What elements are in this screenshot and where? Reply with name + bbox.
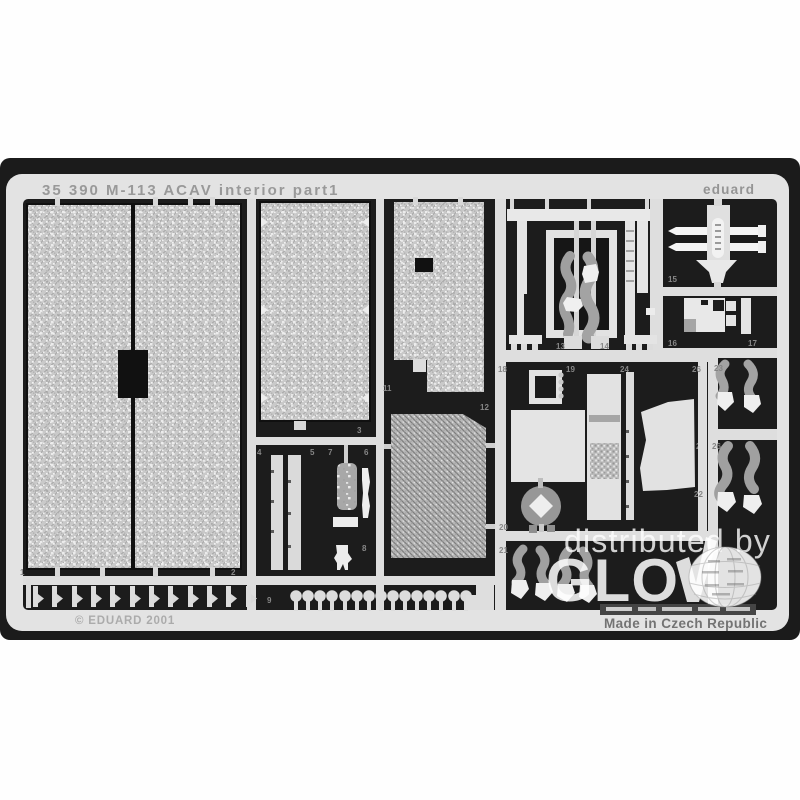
svg-text:18: 18 — [498, 365, 507, 374]
svg-text:1: 1 — [20, 568, 25, 577]
svg-text:3: 3 — [357, 426, 362, 435]
svg-text:19: 19 — [566, 365, 575, 374]
svg-text:15: 15 — [668, 275, 677, 284]
svg-text:12: 12 — [480, 403, 489, 412]
svg-text:21: 21 — [499, 546, 508, 555]
svg-text:© EDUARD 2001: © EDUARD 2001 — [75, 615, 175, 627]
svg-text:eduard: eduard — [703, 182, 755, 197]
svg-text:35 390 M-113 ACAV interior: 35 390 M-113 ACAV interior part1 — [42, 182, 339, 199]
svg-text:23: 23 — [714, 364, 723, 373]
svg-text:2: 2 — [231, 568, 236, 577]
svg-text:22: 22 — [694, 490, 703, 499]
svg-text:26: 26 — [692, 365, 701, 374]
svg-text:20: 20 — [499, 523, 508, 532]
svg-text:4: 4 — [257, 448, 262, 457]
svg-text:Made in Czech Republic: Made in Czech Republic — [604, 616, 767, 631]
svg-text:13: 13 — [556, 342, 565, 351]
svg-text:GLO: GLO — [546, 547, 679, 614]
svg-text:17: 17 — [748, 339, 757, 348]
svg-text:5: 5 — [310, 448, 315, 457]
svg-text:11: 11 — [383, 384, 392, 393]
svg-text:14: 14 — [600, 342, 609, 351]
svg-text:8: 8 — [362, 544, 367, 553]
svg-text:6: 6 — [364, 448, 369, 457]
svg-text:7: 7 — [328, 448, 333, 457]
svg-text:16: 16 — [668, 339, 677, 348]
svg-text:9: 9 — [267, 596, 272, 605]
svg-text:26: 26 — [712, 442, 721, 451]
